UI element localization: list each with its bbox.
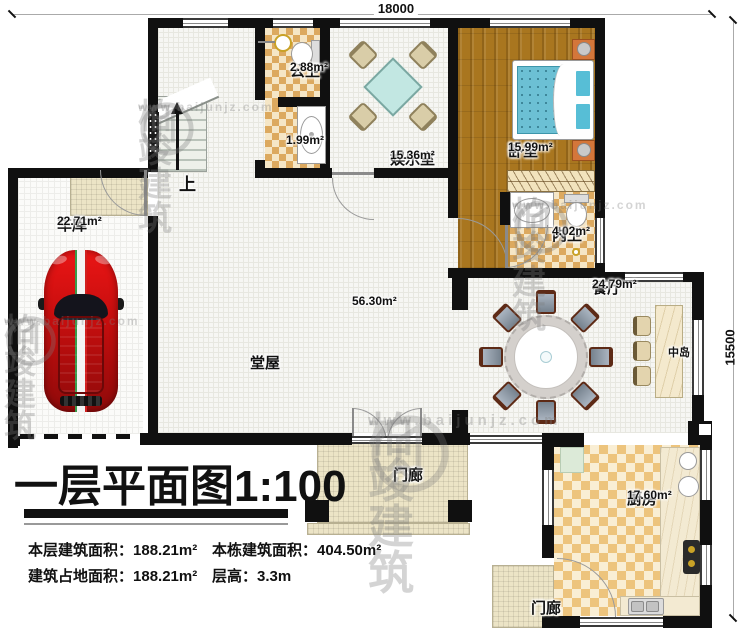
stat-floor-area: 本层建筑面积：188.21m² <box>28 539 197 560</box>
stool <box>633 341 651 361</box>
round-sink-icon <box>679 452 697 470</box>
wall <box>542 433 554 470</box>
window <box>340 18 430 28</box>
chair <box>479 347 503 367</box>
garage-door-dashed-line <box>20 434 143 439</box>
window <box>700 450 712 500</box>
wall <box>683 272 704 282</box>
wall <box>228 18 273 28</box>
wall <box>374 168 448 178</box>
window <box>183 18 228 28</box>
wall <box>255 28 265 100</box>
wall <box>448 268 605 278</box>
window <box>692 320 704 395</box>
stool <box>633 366 651 386</box>
wall <box>8 168 18 448</box>
title-underline-thick <box>24 509 288 518</box>
door-leaf <box>332 172 374 175</box>
wall <box>148 216 158 433</box>
window <box>580 617 663 627</box>
wall-notch <box>699 424 711 435</box>
front-porch-step <box>307 523 470 535</box>
wall <box>452 410 468 445</box>
pipe-line <box>258 41 275 43</box>
wall <box>500 192 510 225</box>
wall <box>452 278 468 310</box>
dimension-line-top <box>12 14 712 15</box>
dimension-line-right <box>733 20 734 620</box>
wall <box>595 18 605 218</box>
window <box>700 545 712 585</box>
car-rear-vent <box>60 396 102 406</box>
dimension-label-right: 15500 <box>723 329 738 365</box>
window <box>490 18 570 28</box>
sink-basin <box>631 601 644 612</box>
stair-arrow-line <box>176 112 179 170</box>
round-sink-icon <box>678 476 699 497</box>
threshold <box>352 436 422 444</box>
car-headlight <box>50 254 67 266</box>
bed-pillow <box>574 102 592 131</box>
wall <box>255 168 332 178</box>
sink-icon <box>274 34 292 52</box>
wall <box>542 525 554 558</box>
nightstand-lamp-icon <box>577 143 591 157</box>
stat-floor-height: 层高：3.3m <box>212 565 291 586</box>
title-underline-thin <box>24 523 288 525</box>
wall <box>430 18 490 28</box>
car-body <box>44 250 118 412</box>
window <box>470 435 542 444</box>
door-knob <box>572 248 580 256</box>
kitchen-counter <box>660 447 700 597</box>
stat-footprint-area: 建筑占地面积：188.21m² <box>28 565 197 586</box>
door-leaf <box>144 170 147 216</box>
basin-icon <box>514 198 550 223</box>
door-leaf <box>505 225 508 268</box>
stair-arrow-head <box>171 102 183 114</box>
window <box>273 18 313 28</box>
car-headlight <box>94 254 111 266</box>
closet <box>507 170 595 192</box>
wall <box>692 282 704 320</box>
stat-total-area: 本栋建筑面积：404.50m² <box>212 539 381 560</box>
page-title: 一层平面图1:100 <box>14 450 347 514</box>
car-engine-cover <box>58 316 104 394</box>
chair <box>536 290 556 314</box>
porch-column <box>448 500 472 522</box>
floor-plan: 上 <box>0 0 750 638</box>
chair <box>589 347 613 367</box>
entry-mat <box>560 447 584 473</box>
table-center <box>540 351 552 363</box>
stool <box>633 316 651 336</box>
wall <box>8 436 20 446</box>
burner-icon <box>688 546 695 553</box>
wall <box>313 18 340 28</box>
chair <box>536 400 556 424</box>
dimension-label-top: 18000 <box>374 1 418 16</box>
burner-icon <box>688 560 695 567</box>
wall <box>448 28 458 218</box>
wall-hatch-block <box>148 112 159 152</box>
wall <box>700 500 712 545</box>
wall <box>140 433 352 445</box>
wall <box>700 585 712 628</box>
window <box>595 218 605 263</box>
nightstand-lamp-icon <box>577 42 591 56</box>
bed-blanket-fold <box>553 64 571 136</box>
bed-pillow <box>574 69 592 98</box>
car <box>44 250 118 412</box>
wall <box>595 263 605 278</box>
sink-basin <box>646 601 659 612</box>
window <box>542 470 554 525</box>
